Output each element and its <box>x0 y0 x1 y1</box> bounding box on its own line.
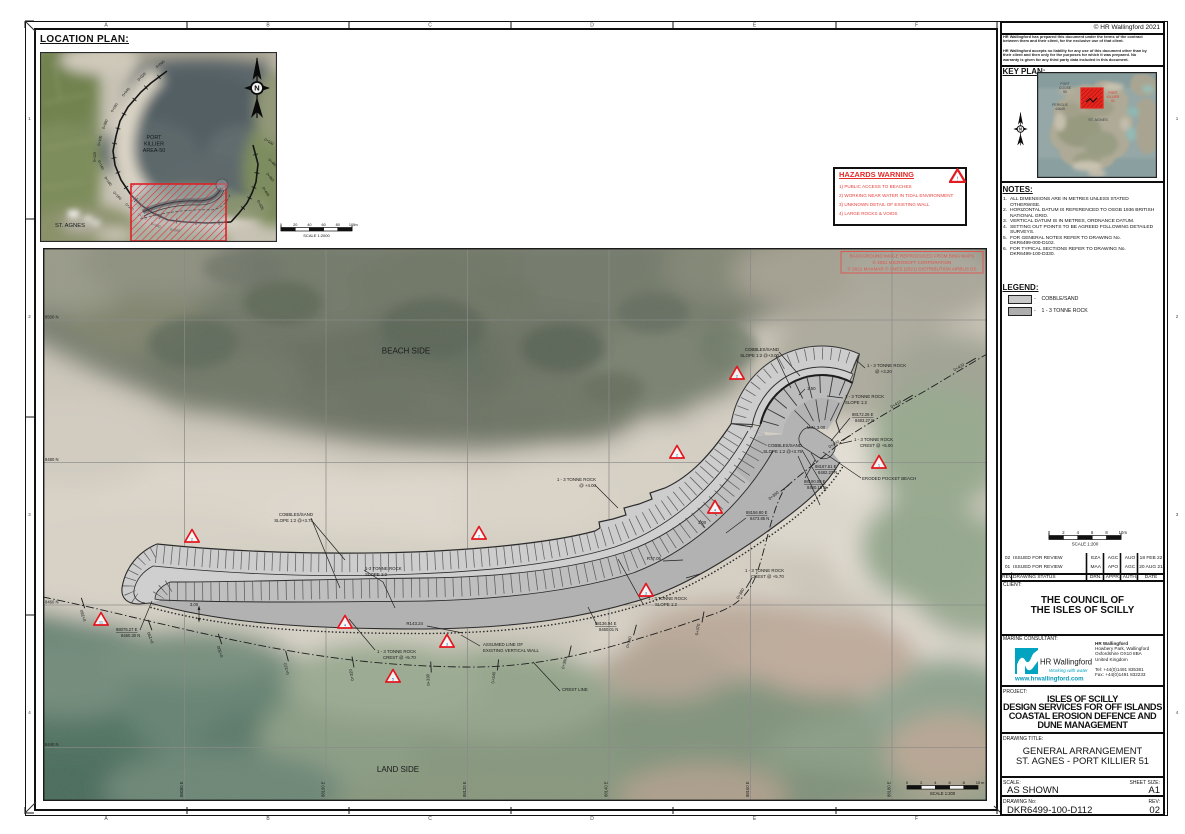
svg-text:E: E <box>753 23 757 29</box>
svg-text:EXISTING VERTICAL WALL: EXISTING VERTICAL WALL <box>483 648 540 653</box>
svg-text:MIN. 3.00: MIN. 3.00 <box>807 425 826 430</box>
svg-text:1: 1 <box>1176 116 1179 121</box>
svg-text:N: N <box>1019 126 1022 131</box>
svg-text:8460.30 N: 8460.30 N <box>121 633 140 638</box>
svg-text:88136.94 E: 88136.94 E <box>595 621 617 626</box>
svg-text:CREST @ +5.70: CREST @ +5.70 <box>751 574 784 579</box>
svg-text:D: D <box>590 816 594 822</box>
svg-text:88075.27 E: 88075.27 E <box>116 627 138 632</box>
svg-text:60: 60 <box>321 223 325 227</box>
svg-text:CREST LINE: CREST LINE <box>562 687 588 692</box>
svg-text:ASSUMED LINE OF: ASSUMED LINE OF <box>483 642 523 647</box>
svg-text:3.00: 3.00 <box>698 520 707 525</box>
svg-text:!: ! <box>957 176 958 182</box>
svg-text:A: A <box>104 816 108 822</box>
svg-text:ST. AGNES: ST. AGNES <box>1088 118 1108 122</box>
svg-text:3: 3 <box>1176 512 1179 517</box>
svg-text:ST. AGNES: ST. AGNES <box>55 223 85 229</box>
svg-text:B: B <box>266 816 270 822</box>
svg-text:1.50: 1.50 <box>807 386 816 391</box>
svg-text:PORT: PORT <box>147 135 163 141</box>
svg-text:SLOPE 1:2: SLOPE 1:2 <box>655 602 678 607</box>
svg-text:www.hrwallingford.com: www.hrwallingford.com <box>1014 676 1084 683</box>
svg-text:COBBLES/SAND: COBBLES/SAND <box>768 443 802 448</box>
svg-text:N: N <box>254 84 259 93</box>
svg-text:R77.05: R77.05 <box>647 556 662 561</box>
svg-text:SLOPE 1:2 @+3.00: SLOPE 1:2 @+3.00 <box>740 353 779 358</box>
svg-text:F: F <box>915 816 918 822</box>
svg-text:8483.27 N: 8483.27 N <box>855 418 874 423</box>
svg-text:1 - 3 TONNE ROCK: 1 - 3 TONNE ROCK <box>377 649 416 654</box>
svg-text:SLOPE 1:2: SLOPE 1:2 <box>845 400 868 405</box>
svg-text:HR Wallingford: HR Wallingford <box>1040 658 1092 667</box>
svg-text:88100 E: 88100 E <box>321 781 326 797</box>
svg-text:ERODED POCKET BEACH: ERODED POCKET BEACH <box>862 476 916 481</box>
svg-text:COBBLES/SAND: COBBLES/SAND <box>745 347 779 352</box>
svg-text:4: 4 <box>1176 710 1179 715</box>
svg-text:© 2021 MICROSOFT CORPORATION: © 2021 MICROSOFT CORPORATION <box>873 259 952 265</box>
svg-text:A: A <box>104 23 108 29</box>
svg-text:CREST @ +5.70: CREST @ +5.70 <box>383 655 416 660</box>
svg-text:B: B <box>266 23 270 29</box>
svg-text:8473.85 N: 8473.85 N <box>750 516 769 521</box>
svg-text:50: 50 <box>1063 90 1067 94</box>
svg-text:1-3 TONNE ROCK: 1-3 TONNE ROCK <box>365 566 402 571</box>
svg-text:@ +4.00: @ +4.00 <box>579 483 596 488</box>
svg-text:R143.24: R143.24 <box>406 621 423 626</box>
svg-text:C: C <box>428 23 432 29</box>
svg-text:1 - 3 TONNE ROCK: 1 - 3 TONNE ROCK <box>867 363 906 368</box>
svg-text:C: C <box>428 816 432 822</box>
svg-text:1 - 3 TONNE ROCK: 1 - 3 TONNE ROCK <box>854 437 893 442</box>
svg-text:8480.15 N: 8480.15 N <box>807 485 826 490</box>
svg-text:8482.27 N: 8482.27 N <box>818 470 837 475</box>
svg-text:88160 E: 88160 E <box>745 781 750 797</box>
svg-text:2: 2 <box>1176 314 1179 319</box>
svg-text:4: 4 <box>28 710 31 715</box>
svg-text:0+120: 0+120 <box>93 152 97 162</box>
svg-text:8500 N: 8500 N <box>45 315 59 320</box>
svg-text:F: F <box>915 23 918 29</box>
svg-text:2: 2 <box>1062 530 1065 535</box>
svg-text:1 - 3 TONNE ROCK: 1 - 3 TONNE ROCK <box>557 477 596 482</box>
svg-text:1: 1 <box>28 116 31 121</box>
svg-text:BACKGROUND IMAGE REPRODUCED FR: BACKGROUND IMAGE REPRODUCED FROM BING MA… <box>850 254 975 259</box>
svg-text:1 - 3 TONNE ROCK: 1 - 3 TONNE ROCK <box>845 394 884 399</box>
svg-text:1 - 3 TONNE ROCK: 1 - 3 TONNE ROCK <box>648 596 687 601</box>
svg-text:@ +3.20: @ +3.20 <box>875 369 892 374</box>
svg-text:20: 20 <box>293 223 297 227</box>
svg-text:© 2021 MAXMAR © CNES (2021) DI: © 2021 MAXMAR © CNES (2021) DISTRIBUTION… <box>847 266 976 272</box>
svg-text:40: 40 <box>307 223 311 227</box>
svg-text:KILLIER: KILLIER <box>144 142 164 148</box>
svg-text:AREA-50: AREA-50 <box>143 148 165 154</box>
svg-text:E: E <box>753 816 757 822</box>
svg-text:SCALE 1:200: SCALE 1:200 <box>930 791 956 796</box>
svg-text:44&45: 44&45 <box>1055 107 1065 111</box>
svg-text:CREST @ +5.00: CREST @ +5.00 <box>860 443 893 448</box>
svg-text:88120 E: 88120 E <box>462 781 467 797</box>
svg-text:2: 2 <box>28 314 31 319</box>
svg-text:88190.00 E: 88190.00 E <box>804 479 826 484</box>
svg-text:88080 E: 88080 E <box>179 781 184 797</box>
svg-text:88156.80 E: 88156.80 E <box>746 510 768 515</box>
svg-text:D: D <box>590 23 594 29</box>
svg-text:88167.61 E: 88167.61 E <box>815 464 837 469</box>
svg-text:m: m <box>355 223 358 227</box>
svg-text:COBBLES/SAND: COBBLES/SAND <box>279 512 313 517</box>
svg-text:51: 51 <box>1111 99 1115 103</box>
svg-text:SCALE 1:2000: SCALE 1:2000 <box>303 233 330 238</box>
svg-text:4: 4 <box>1077 530 1080 535</box>
svg-text:1 - 3 TONNE ROCK: 1 - 3 TONNE ROCK <box>745 568 784 573</box>
svg-text:6: 6 <box>1091 530 1094 535</box>
svg-text:3.00: 3.00 <box>190 602 199 607</box>
svg-text:m: m <box>1124 530 1128 535</box>
svg-text:SCALE 1:200: SCALE 1:200 <box>1072 541 1099 546</box>
svg-text:SLOPE 1:2 @+3.75: SLOPE 1:2 @+3.75 <box>274 518 313 523</box>
svg-text:88180 E: 88180 E <box>887 781 892 797</box>
svg-text:BEACH SIDE: BEACH SIDE <box>382 347 430 356</box>
svg-text:8: 8 <box>1105 530 1108 535</box>
svg-text:SLOPE 1:2 @+3.75: SLOPE 1:2 @+3.75 <box>763 449 802 454</box>
svg-text:8440 N: 8440 N <box>45 742 59 747</box>
svg-text:8480 N: 8480 N <box>45 457 59 462</box>
svg-text:8460 N: 8460 N <box>45 600 59 605</box>
svg-text:88172.26 E: 88172.26 E <box>852 412 874 417</box>
svg-text:80: 80 <box>336 223 340 227</box>
svg-text:88140 E: 88140 E <box>604 781 609 797</box>
svg-text:3: 3 <box>28 512 31 517</box>
svg-text:SLOPE 1:2: SLOPE 1:2 <box>365 572 388 577</box>
svg-text:LAND SIDE: LAND SIDE <box>377 765 419 774</box>
svg-text:0+330: 0+330 <box>425 673 431 686</box>
svg-text:8460.01 N: 8460.01 N <box>599 627 618 632</box>
svg-text:Working with water: Working with water <box>1049 668 1088 673</box>
